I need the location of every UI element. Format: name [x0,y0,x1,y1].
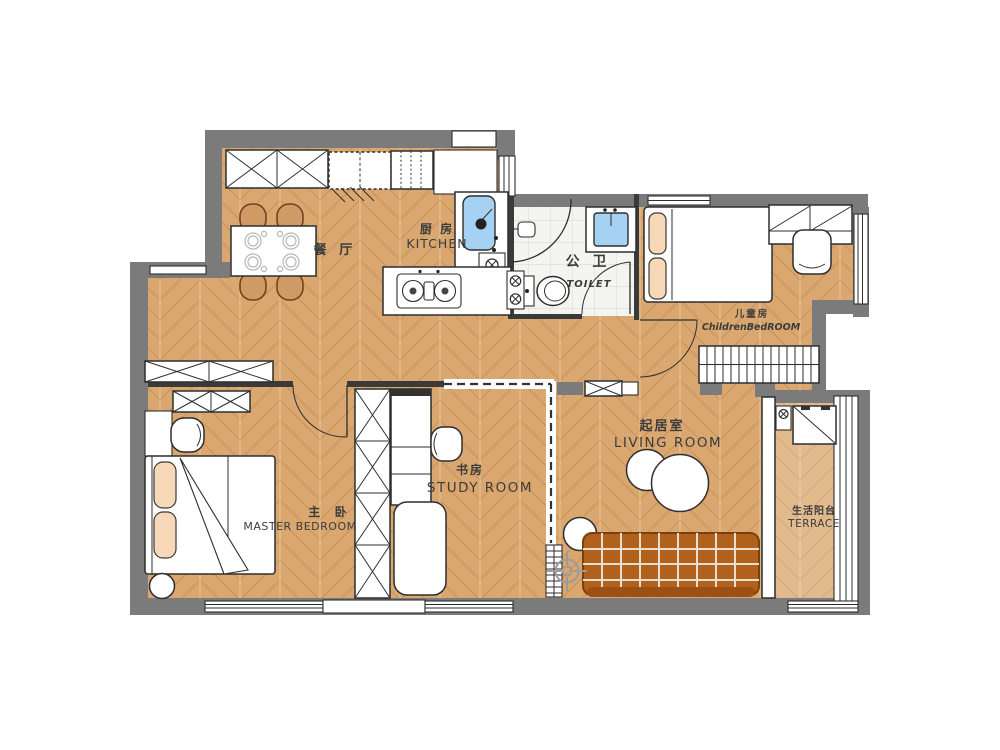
floor-plan-canvas: 餐 厅 厨 房 [0,0,1000,750]
wall-toilet-bottom [508,314,582,319]
entry-cabinet [434,150,497,194]
children-radiator [699,346,819,383]
study-label-en: STUDY ROOM [427,480,533,496]
faucet-icon [476,219,487,230]
kitchen-counter-bottom [383,267,511,315]
wall-living-top-a [557,382,583,395]
master-vanity [145,411,172,456]
master-stool [150,574,175,599]
toilet-wc [520,276,569,306]
wall-living-top-c [755,382,775,397]
window-terrace-right [834,396,858,602]
living-sofa [583,533,759,597]
children-bed [644,207,772,302]
children-label-en: ChildrenBedROOM [702,322,801,333]
toilet-label-en: TOILET [566,279,611,290]
kitchen-sink [463,196,498,252]
dining-label-cn: 餐 厅 [313,242,357,258]
master-chair [171,418,204,452]
window-children-top [648,196,710,205]
stove [397,270,461,308]
washing-machine [793,406,836,444]
toilet-label-cn: 公 卫 [566,254,611,270]
window-top-corner [499,156,515,196]
study-chair [431,427,462,461]
wall-study-top [347,381,447,387]
study-label-cn: 书房 [456,462,484,477]
living-round-table-large [652,455,709,512]
living-top-cabinet-x [585,381,638,396]
study-daybed [394,502,446,595]
dining-cabinet-x [226,150,328,188]
wardrobe-column [355,389,390,598]
window-left-jog [150,266,206,274]
wall-terrace-right-edge [858,390,870,610]
wall-living-terrace-divider [762,397,775,598]
living-label-en: LIVING ROOM [614,435,722,451]
children-chair [793,230,831,274]
children-label-cn: 儿童房 [734,308,770,320]
toilet-basin [586,207,636,252]
study-desk-column [391,389,431,505]
living-label-cn: 起居室 [638,418,684,434]
window-bottom-terrace [788,601,858,612]
terrace-drain-box [776,406,791,430]
master-label-cn: 主 卧 [308,504,351,519]
window-bottom-bay [323,600,425,613]
window-bottom-study [425,601,513,612]
kitchen-label-en: KITCHEN [406,236,467,251]
window-bottom-master [205,601,323,612]
terrace-label-en: TERRACE [787,518,840,530]
window-children-right [854,214,868,304]
master-bed [145,456,275,574]
dining-table [231,226,316,276]
floor-plan-page: 餐 厅 厨 房 [0,0,1000,750]
sofa-base [587,587,755,597]
terrace-label-cn: 生活阳台 [792,504,836,517]
entry-door-gap [452,131,496,147]
hall-wardrobe-row [145,361,273,382]
master-wardrobe-row [173,391,250,412]
toilet-service-box [507,271,524,309]
kitchen-label-cn: 厨 房 [420,221,454,236]
master-label-en: MASTER BEDROOM [243,520,356,533]
pantry-cabinet [391,151,433,189]
wall-left-upper [205,130,222,270]
